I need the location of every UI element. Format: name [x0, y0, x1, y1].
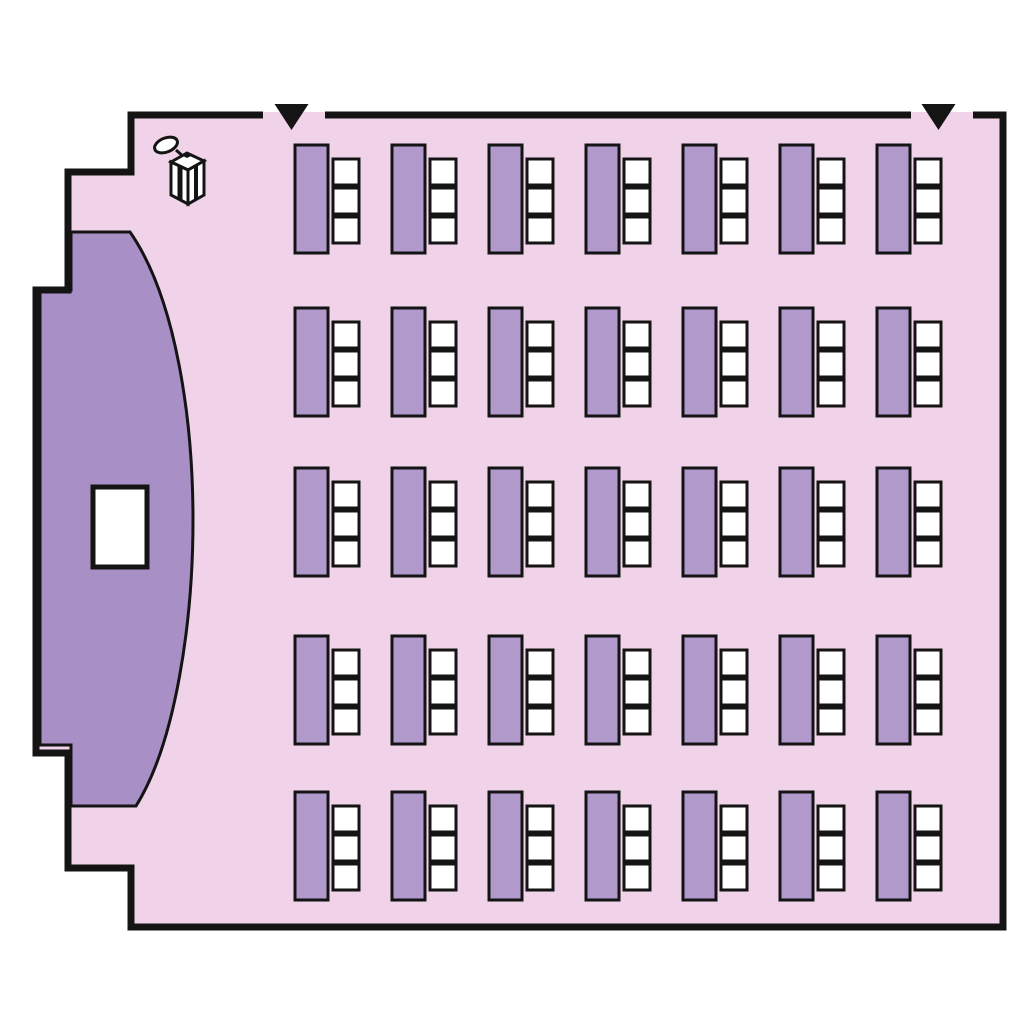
chair	[818, 159, 844, 185]
table	[586, 145, 619, 253]
chair	[527, 864, 553, 890]
table	[683, 308, 716, 416]
table	[877, 308, 910, 416]
chair	[624, 159, 650, 185]
chair	[624, 217, 650, 243]
chair	[527, 708, 553, 734]
chair	[333, 322, 359, 348]
chair	[818, 835, 844, 861]
chair	[818, 679, 844, 705]
table	[295, 792, 328, 900]
table	[877, 468, 910, 576]
table	[295, 145, 328, 253]
chair	[333, 540, 359, 566]
chair	[430, 806, 456, 832]
chair	[333, 864, 359, 890]
chair	[333, 511, 359, 537]
table	[683, 636, 716, 744]
table	[489, 308, 522, 416]
chair	[818, 708, 844, 734]
chair	[430, 188, 456, 214]
chair	[333, 679, 359, 705]
chair	[818, 217, 844, 243]
chair	[721, 679, 747, 705]
floor-plan	[0, 0, 1024, 1024]
lectern-box-icon	[171, 153, 204, 204]
chair	[430, 679, 456, 705]
chair	[721, 708, 747, 734]
table	[586, 792, 619, 900]
chair	[527, 482, 553, 508]
chair	[333, 188, 359, 214]
table	[392, 792, 425, 900]
chair	[624, 708, 650, 734]
chair	[721, 217, 747, 243]
table	[780, 792, 813, 900]
chair	[721, 835, 747, 861]
chair	[624, 835, 650, 861]
chair	[333, 159, 359, 185]
chair	[624, 864, 650, 890]
chair	[624, 188, 650, 214]
chair	[430, 159, 456, 185]
chair	[915, 217, 941, 243]
chair	[527, 217, 553, 243]
chair	[333, 482, 359, 508]
chair	[818, 351, 844, 377]
chair	[527, 806, 553, 832]
table	[780, 468, 813, 576]
floor-plan-canvas	[0, 0, 1024, 1024]
chair	[915, 322, 941, 348]
table	[780, 308, 813, 416]
chair	[430, 511, 456, 537]
chair	[430, 380, 456, 406]
table	[877, 636, 910, 744]
chair	[430, 864, 456, 890]
chair	[818, 511, 844, 537]
chair	[430, 650, 456, 676]
table	[586, 308, 619, 416]
chair	[624, 806, 650, 832]
chair	[721, 188, 747, 214]
table	[295, 308, 328, 416]
table	[295, 468, 328, 576]
chair	[818, 540, 844, 566]
chair	[818, 864, 844, 890]
chair	[527, 679, 553, 705]
chair	[333, 380, 359, 406]
chair	[915, 511, 941, 537]
chair	[624, 380, 650, 406]
chair	[527, 188, 553, 214]
table	[392, 145, 425, 253]
chair	[527, 159, 553, 185]
chair	[527, 322, 553, 348]
chair	[430, 708, 456, 734]
chair	[430, 217, 456, 243]
presentation-screen	[93, 487, 147, 567]
chair	[624, 511, 650, 537]
chair	[721, 540, 747, 566]
chair	[915, 540, 941, 566]
chair	[818, 806, 844, 832]
chair	[721, 650, 747, 676]
chair	[721, 806, 747, 832]
chair	[818, 322, 844, 348]
chair	[721, 482, 747, 508]
chair	[624, 322, 650, 348]
chair	[721, 511, 747, 537]
chair	[818, 380, 844, 406]
chair	[915, 806, 941, 832]
chair	[915, 708, 941, 734]
chair	[818, 650, 844, 676]
chair	[333, 708, 359, 734]
chair	[333, 650, 359, 676]
table	[683, 792, 716, 900]
chair	[915, 482, 941, 508]
chair	[818, 188, 844, 214]
table	[392, 308, 425, 416]
chair	[915, 650, 941, 676]
chair	[624, 650, 650, 676]
chair	[915, 351, 941, 377]
chair	[624, 679, 650, 705]
chair	[915, 380, 941, 406]
chair	[624, 351, 650, 377]
chair	[430, 540, 456, 566]
table	[780, 145, 813, 253]
chair	[915, 159, 941, 185]
chair	[430, 835, 456, 861]
chair	[333, 835, 359, 861]
chair	[527, 380, 553, 406]
chair	[721, 159, 747, 185]
chair	[721, 864, 747, 890]
chair	[818, 482, 844, 508]
chair	[333, 806, 359, 832]
chair	[721, 322, 747, 348]
chair	[915, 188, 941, 214]
chair	[624, 540, 650, 566]
chair	[527, 650, 553, 676]
chair	[721, 351, 747, 377]
table	[586, 636, 619, 744]
chair	[721, 380, 747, 406]
chair	[430, 482, 456, 508]
table	[683, 468, 716, 576]
chair	[430, 351, 456, 377]
table	[392, 636, 425, 744]
chair	[430, 322, 456, 348]
table	[877, 145, 910, 253]
table	[877, 792, 910, 900]
chair	[915, 835, 941, 861]
chair	[527, 540, 553, 566]
chair	[333, 217, 359, 243]
table	[295, 636, 328, 744]
table	[489, 468, 522, 576]
chair	[915, 679, 941, 705]
table	[489, 145, 522, 253]
chair	[915, 864, 941, 890]
table	[489, 636, 522, 744]
table	[780, 636, 813, 744]
table	[683, 145, 716, 253]
chair	[527, 511, 553, 537]
chair	[624, 482, 650, 508]
chair	[527, 835, 553, 861]
chair	[527, 351, 553, 377]
chair	[333, 351, 359, 377]
table	[392, 468, 425, 576]
table	[489, 792, 522, 900]
table	[586, 468, 619, 576]
